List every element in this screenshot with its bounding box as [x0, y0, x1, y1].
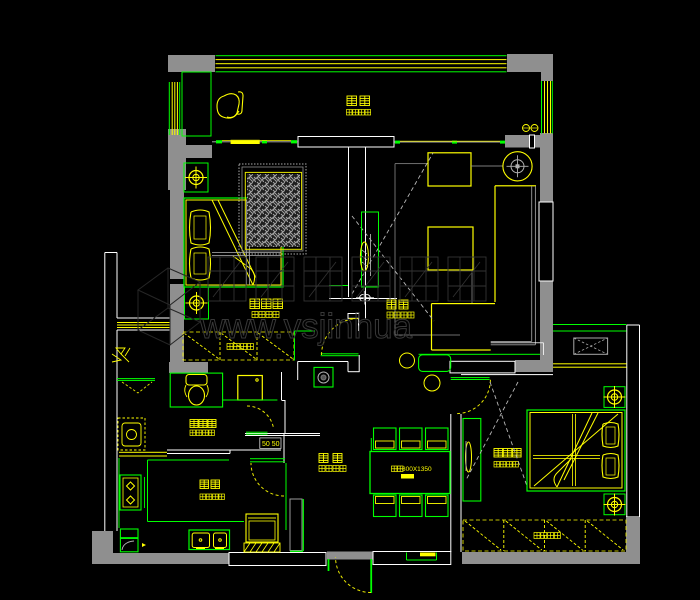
- svg-text:50 50: 50 50: [262, 441, 280, 448]
- svg-text:800X1350: 800X1350: [402, 466, 432, 473]
- svg-text:www.vsjinhua: www.vsjinhua: [199, 307, 413, 346]
